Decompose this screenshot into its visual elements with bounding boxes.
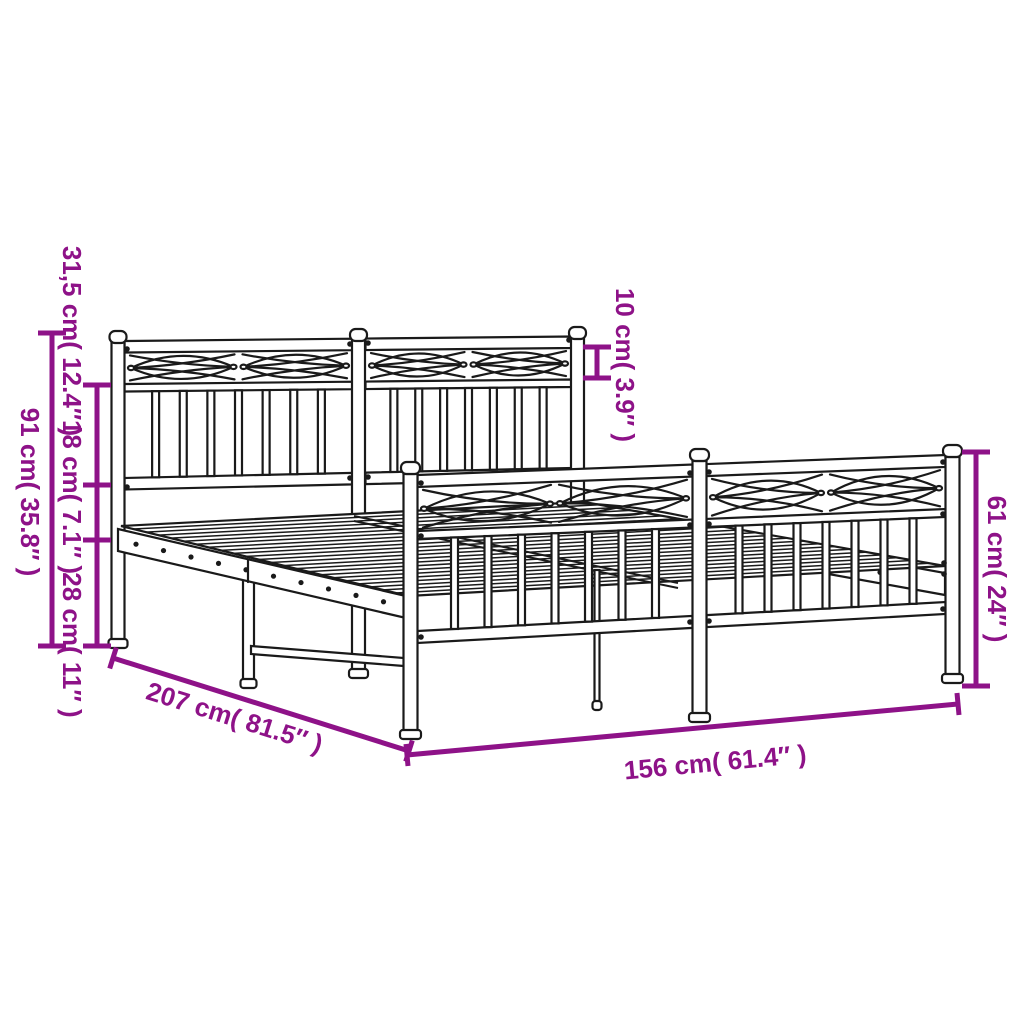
dim-footboard-height: 61 cm( 24″ ) (962, 452, 1012, 686)
footboard (400, 445, 963, 739)
dim-base-height-label: 28 cm( 11″ ) (57, 572, 87, 717)
dim-length: 207 cm( 81.5″ ) (110, 648, 413, 762)
product-dimension-diagram: 91 cm( 35.8″ ) 31,5 cm( 12.4″ ) 18 cm( 7… (0, 0, 1024, 1024)
dim-left-stack: 31,5 cm( 12.4″ ) 18 cm( 7.1″ ) 28 cm( 11… (57, 246, 111, 718)
bed-frame-diagram-svg: 91 cm( 35.8″ ) 31,5 cm( 12.4″ ) 18 cm( 7… (0, 0, 1024, 1024)
dim-top-band: 10 cm( 3.9″ ) (583, 288, 640, 442)
dim-top-band-line (583, 347, 611, 378)
dim-top-band-label: 10 cm( 3.9″ ) (610, 288, 640, 442)
dim-gap-label: 18 cm( 7.1″ ) (57, 420, 87, 574)
dim-width: 156 cm( 61.4″ ) (406, 693, 959, 785)
dim-overall-height-label: 91 cm( 35.8″ ) (15, 408, 45, 577)
dim-headboard-panel-label: 31,5 cm( 12.4″ ) (57, 246, 87, 436)
dim-footboard-height-label: 61 cm( 24″ ) (982, 496, 1012, 643)
dim-width-label: 156 cm( 61.4″ ) (623, 739, 808, 786)
bed-frame-drawing (109, 327, 964, 739)
